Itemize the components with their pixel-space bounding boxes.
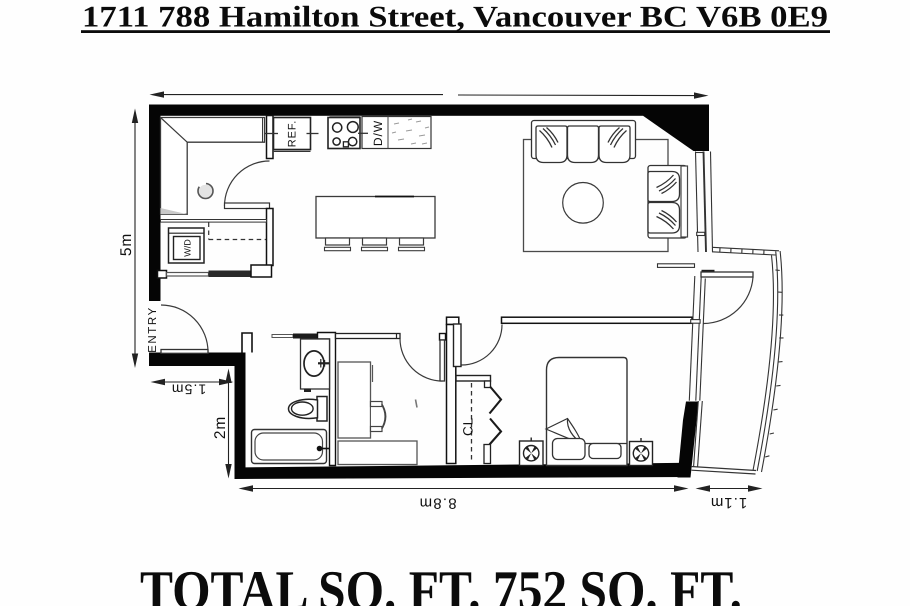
svg-text:2m: 2m: [212, 416, 229, 439]
svg-text:CL: CL: [461, 417, 476, 436]
svg-text:ENTRY: ENTRY: [147, 306, 159, 353]
svg-text:W/D: W/D: [183, 239, 193, 257]
svg-text:1711 788 Hamilton Street, Vanc: 1711 788 Hamilton Street, Vancouver BC V…: [82, 1, 828, 34]
svg-text:5m: 5m: [118, 233, 135, 256]
svg-text:REF.: REF.: [286, 120, 298, 147]
svg-text:D/W: D/W: [371, 120, 385, 146]
svg-text:8.8m: 8.8m: [418, 495, 456, 512]
svg-text:1.5m: 1.5m: [171, 382, 207, 398]
svg-text:TOTAL SQ. FT. 752 SQ. FT.: TOTAL SQ. FT. 752 SQ. FT.: [140, 560, 742, 606]
svg-text:1.1m: 1.1m: [710, 494, 747, 511]
